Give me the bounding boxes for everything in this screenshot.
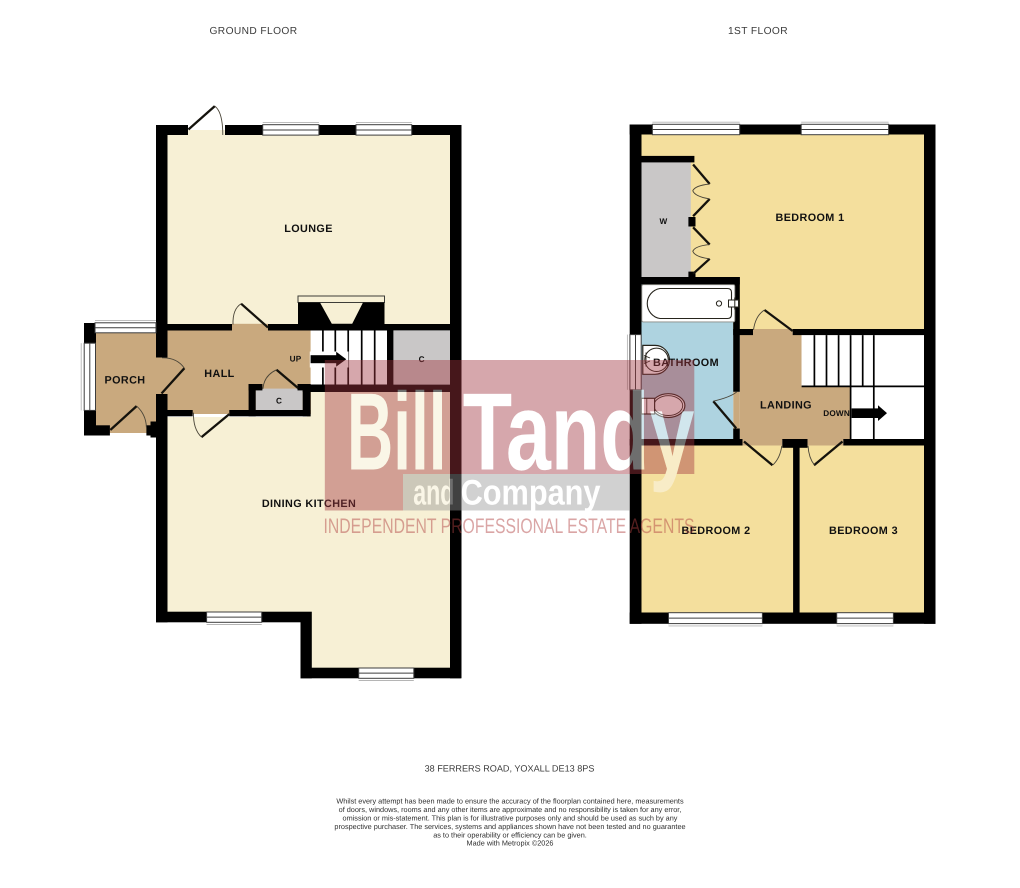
svg-text:1ST FLOOR: 1ST FLOOR [728,26,788,37]
svg-text:Made with Metropix ©2026: Made with Metropix ©2026 [467,839,554,848]
svg-text:INDEPENDENT PROFESSIONAL ESTAT: INDEPENDENT PROFESSIONAL ESTATE AGENTS [324,515,695,538]
svg-text:BEDROOM 1: BEDROOM 1 [776,212,845,224]
svg-text:UP: UP [290,355,302,364]
svg-text:38 FERRERS ROAD, YOXALL DE13 8: 38 FERRERS ROAD, YOXALL DE13 8PS [425,764,595,774]
svg-text:LANDING: LANDING [760,400,812,412]
svg-text:C: C [276,397,282,406]
svg-text:DOWN: DOWN [823,409,850,418]
svg-text:LOUNGE: LOUNGE [284,223,333,235]
svg-text:GROUND FLOOR: GROUND FLOOR [209,26,297,37]
svg-text:BEDROOM 3: BEDROOM 3 [829,525,898,537]
svg-text:PORCH: PORCH [105,375,146,387]
svg-text:W: W [660,217,668,226]
svg-text:HALL: HALL [204,368,234,380]
